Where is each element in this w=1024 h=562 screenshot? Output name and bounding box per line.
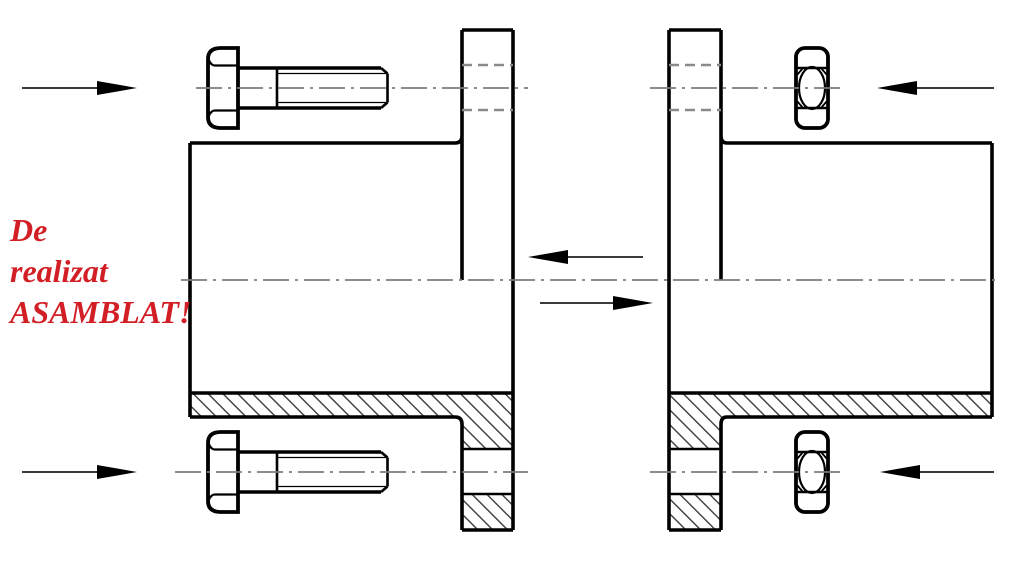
annotation-line-1: De bbox=[10, 210, 191, 251]
drawing-canvas: De realizat ASAMBLAT! bbox=[0, 0, 1024, 562]
assembly-arrow-bottom-left bbox=[22, 465, 137, 479]
assembly-arrow-top-left bbox=[22, 81, 137, 95]
assembly-arrow-bottom-right bbox=[880, 465, 994, 479]
annotation-line-3: ASAMBLAT! bbox=[10, 292, 191, 333]
right-section-hatching bbox=[669, 393, 992, 530]
assembly-arrow-top-right bbox=[877, 81, 994, 95]
task-annotation: De realizat ASAMBLAT! bbox=[10, 210, 191, 333]
annotation-line-2: realizat bbox=[10, 251, 191, 292]
assembly-arrow-center-right bbox=[540, 296, 653, 310]
assembly-arrow-center-left bbox=[528, 250, 643, 264]
